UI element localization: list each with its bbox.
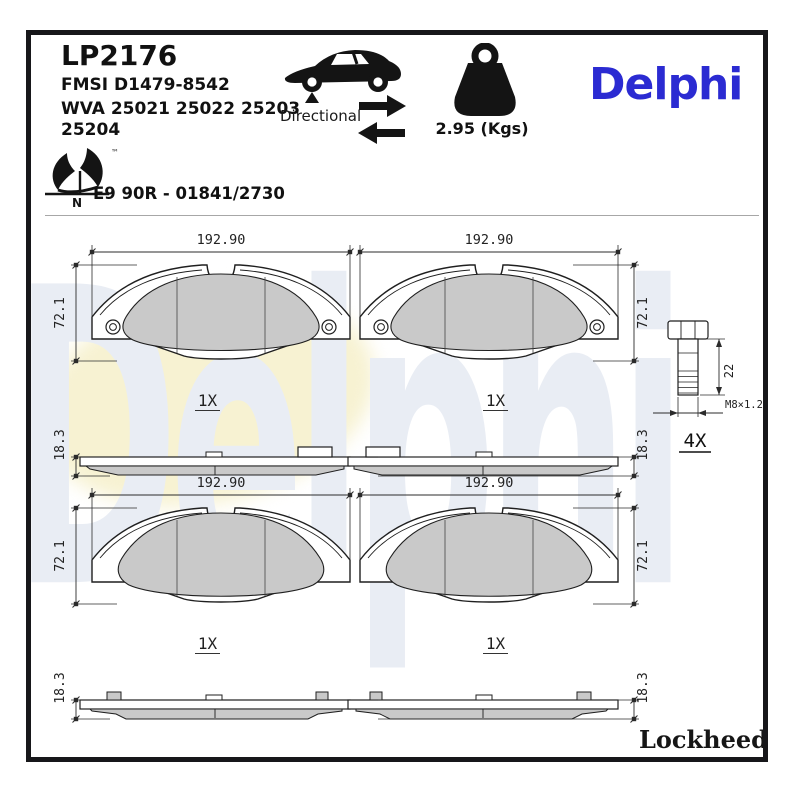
front-axle-marker-icon	[305, 92, 319, 103]
pad-front-view: 192.9072.1	[323, 472, 668, 626]
bolt-thread-dim: M8×1.25	[725, 399, 768, 411]
pad-width-dim: 192.90	[465, 475, 514, 491]
fmsi-reference: FMSI D1479-8542	[61, 75, 230, 95]
drawing-area: 192.9072.11X18.3192.9072.11X18.3192.9072…	[35, 217, 768, 717]
eco-n-mark: N	[72, 196, 82, 209]
datasheet-page: Delphi LP2176 FMSI D1479-8542 WVA 25021 …	[26, 30, 768, 762]
wva-reference-line2: 25204	[61, 120, 120, 140]
eco-tm-mark: ™	[111, 148, 119, 157]
pad-thickness-dim: 18.3	[636, 672, 651, 703]
footer-brand-name: Lockheed	[639, 725, 768, 754]
pad-width-dim: 192.90	[465, 232, 514, 248]
pad-side-view: 18.3	[323, 658, 668, 730]
directional-label: Directional	[280, 107, 361, 125]
wva-reference-line1: WVA 25021 25022 25203	[61, 99, 300, 119]
pad-height-dim: 72.1	[53, 540, 68, 571]
pad-qty-label: 1X	[323, 391, 668, 410]
pad-height-dim: 72.1	[636, 540, 651, 571]
approval-number: E9 90R - 01841/2730	[93, 184, 285, 203]
part-number: LP2176	[61, 39, 177, 72]
bolt-qty-label: 4X	[684, 430, 707, 452]
bolt-length-dim: 22	[722, 364, 736, 378]
header-separator	[45, 215, 759, 216]
guide-bolt-figure: 22M8×1.254X	[645, 313, 768, 473]
pad-front-view: 192.9072.1	[323, 229, 668, 383]
footer-brand-logo: Lockheed®	[639, 723, 768, 754]
pad-height-dim: 72.1	[53, 297, 68, 328]
brand-logo: Delphi	[589, 59, 742, 110]
pad-qty-label: 1X	[323, 634, 668, 653]
pad-width-dim: 192.90	[197, 475, 246, 491]
pad-thickness-dim: 18.3	[53, 429, 68, 460]
weight-label: 2.95 (Kgs)	[427, 119, 537, 138]
pad-thickness-dim: 18.3	[53, 672, 68, 703]
directional-arrows-icon	[357, 93, 407, 145]
weight-icon	[430, 43, 540, 119]
pad-width-dim: 192.90	[197, 232, 246, 248]
